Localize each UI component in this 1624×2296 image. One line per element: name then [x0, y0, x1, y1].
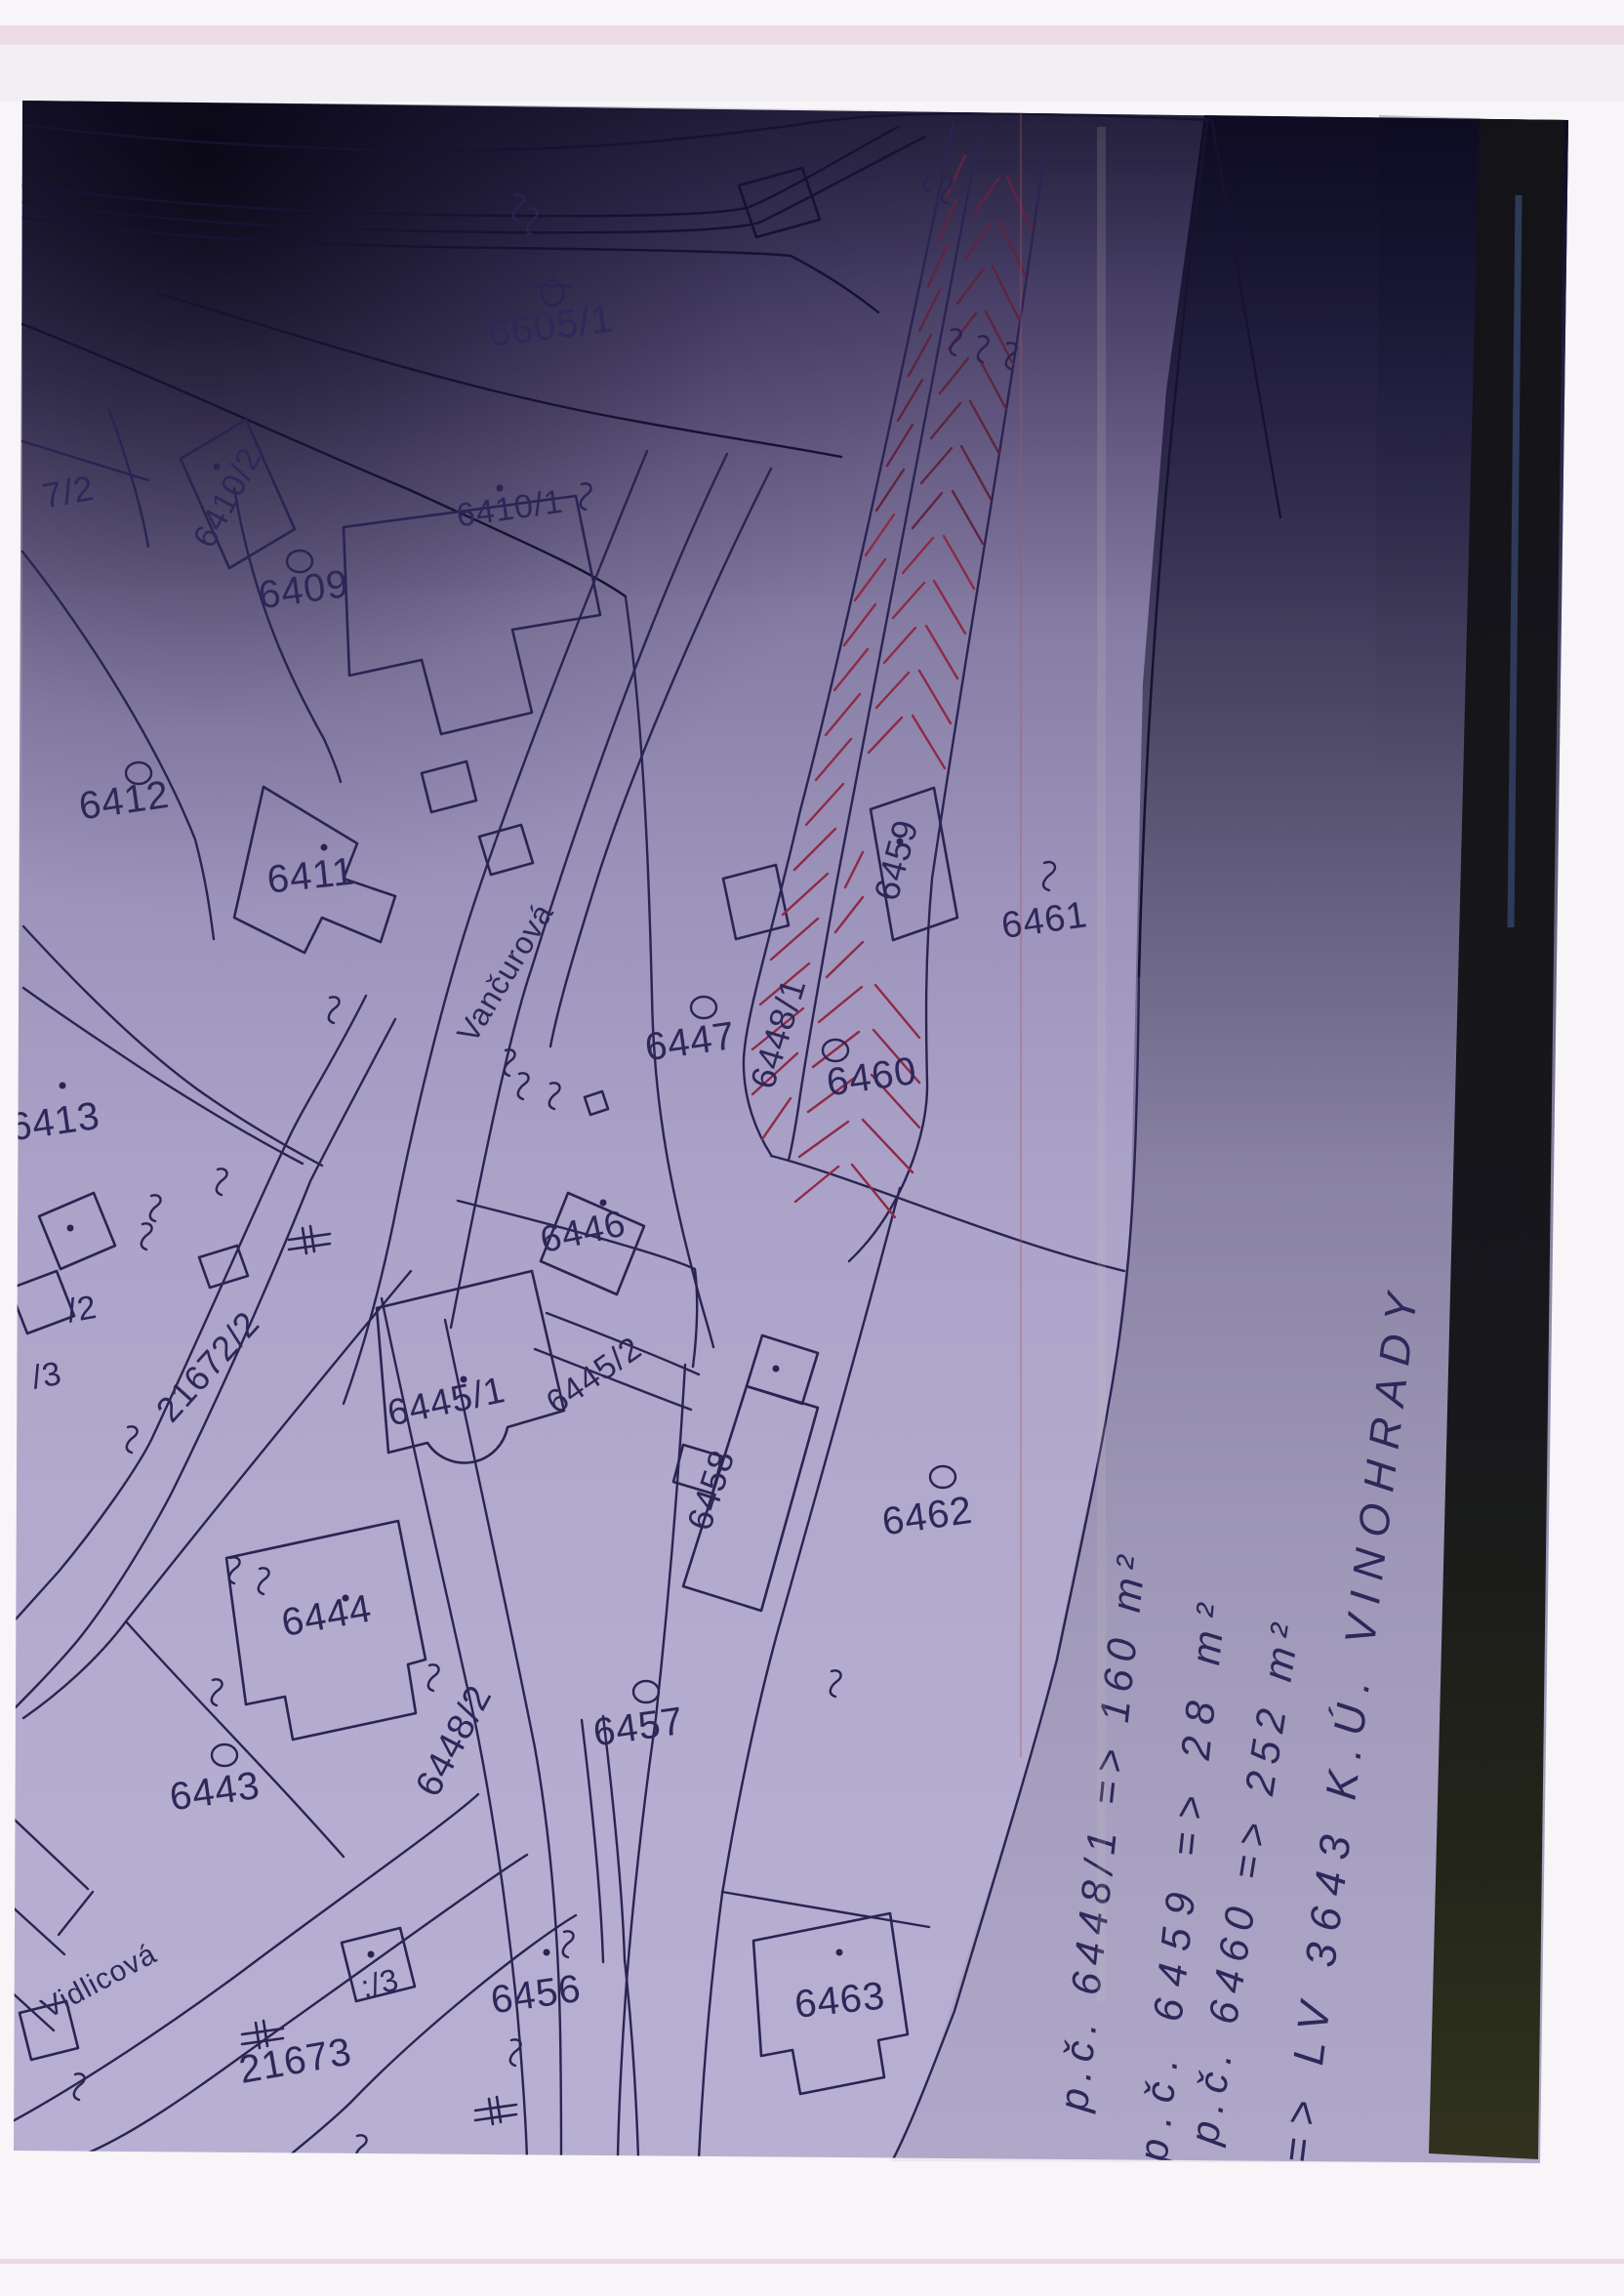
- svg-text:/2: /2: [64, 1289, 100, 1331]
- svg-text:/3: /3: [29, 1355, 64, 1397]
- svg-text:6411: 6411: [265, 849, 357, 901]
